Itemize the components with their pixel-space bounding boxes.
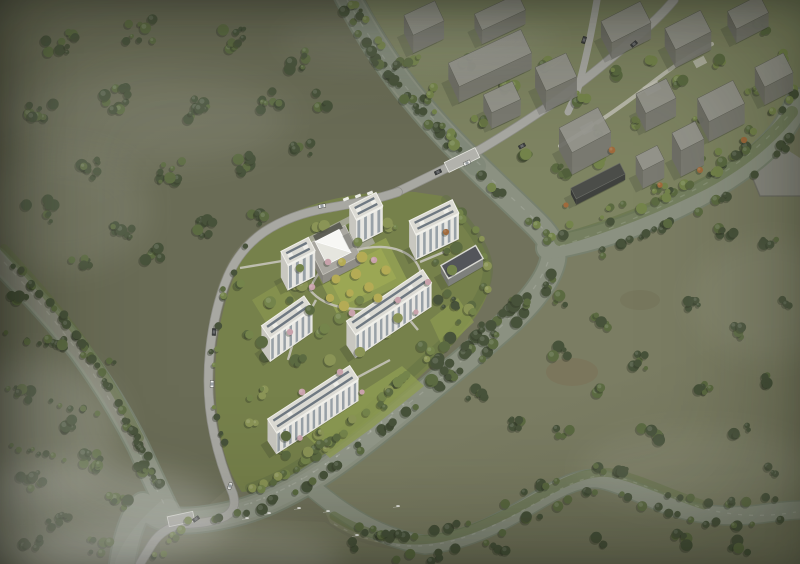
tree <box>270 479 277 486</box>
tree <box>451 242 463 254</box>
tree <box>562 347 567 352</box>
tree <box>112 360 116 364</box>
tree-highlight <box>258 505 263 510</box>
tree <box>245 330 254 339</box>
tree-highlight <box>732 523 735 526</box>
tree <box>779 106 786 113</box>
tree <box>443 289 451 297</box>
tree <box>292 489 298 495</box>
tree-highlight <box>234 30 237 33</box>
tree-highlight <box>295 467 298 470</box>
tree <box>546 268 557 279</box>
tree <box>348 537 357 546</box>
tree-highlight <box>306 306 310 310</box>
tree-highlight <box>424 357 427 360</box>
tree <box>242 27 246 31</box>
tree <box>763 382 769 388</box>
tree <box>642 229 651 238</box>
tree <box>426 377 434 385</box>
tree <box>234 39 242 47</box>
car <box>212 328 216 335</box>
tree <box>122 417 128 423</box>
tree <box>439 341 450 352</box>
tree-highlight <box>652 227 655 230</box>
tree <box>98 368 106 376</box>
tree-highlight <box>559 231 564 236</box>
tree <box>425 279 431 285</box>
tree <box>339 301 350 312</box>
tree <box>520 148 532 160</box>
window-strip <box>348 386 351 406</box>
tree <box>511 294 523 306</box>
tree <box>348 415 357 424</box>
tree <box>258 392 266 400</box>
tree <box>221 439 228 446</box>
tree <box>73 331 81 339</box>
tree-highlight <box>549 234 553 238</box>
tree-highlight <box>268 496 273 501</box>
tree <box>719 197 725 203</box>
tree <box>43 47 54 58</box>
tree-highlight <box>434 260 437 263</box>
tree-highlight <box>81 353 84 356</box>
tree <box>10 263 15 268</box>
tree-highlight <box>715 224 720 229</box>
tree <box>243 243 248 248</box>
tree <box>594 313 599 318</box>
tree <box>479 236 485 242</box>
tree <box>41 35 52 46</box>
tree <box>333 434 341 442</box>
window-strip <box>380 318 382 340</box>
tree <box>487 183 496 192</box>
tree-highlight <box>693 117 695 119</box>
tree <box>524 298 531 305</box>
tree <box>299 354 307 362</box>
tree <box>144 451 153 460</box>
tree <box>686 181 694 189</box>
tree <box>453 520 461 528</box>
tree <box>245 151 253 159</box>
tree <box>373 293 382 302</box>
tree <box>320 323 330 333</box>
tree <box>664 509 673 518</box>
tree-highlight <box>428 558 432 562</box>
tree <box>140 254 152 266</box>
tree <box>356 296 364 304</box>
tree-highlight <box>481 284 484 287</box>
tree <box>323 101 327 105</box>
window-strip <box>324 402 327 422</box>
tree-highlight <box>442 305 444 307</box>
window-strip <box>368 326 371 348</box>
tree-highlight <box>260 213 264 217</box>
tree <box>363 409 371 417</box>
tree-highlight <box>45 336 49 340</box>
tree <box>357 252 368 263</box>
window-strip <box>307 413 310 433</box>
tree <box>542 482 549 489</box>
tree <box>237 279 245 287</box>
tree-highlight <box>447 133 451 137</box>
tree-highlight <box>103 379 105 381</box>
tree-highlight <box>689 517 692 520</box>
tree <box>617 239 626 248</box>
tree <box>231 269 237 275</box>
tree-highlight <box>266 298 271 303</box>
tree <box>562 302 568 308</box>
tree <box>351 269 361 279</box>
tree <box>498 309 506 317</box>
car-windshield <box>213 330 216 333</box>
tree <box>57 339 68 350</box>
tree <box>641 351 649 359</box>
tree <box>60 310 68 318</box>
tree-highlight <box>444 230 447 233</box>
tree <box>461 342 469 350</box>
tree-highlight <box>674 530 678 534</box>
window-strip <box>310 254 313 278</box>
tree <box>296 264 304 272</box>
window-strip <box>330 398 332 418</box>
tree <box>332 275 341 284</box>
boat <box>297 507 301 509</box>
tree-highlight <box>745 423 748 426</box>
tree-highlight <box>119 407 123 411</box>
tree-highlight <box>287 58 292 63</box>
tree <box>577 94 586 103</box>
tree-highlight <box>658 183 660 185</box>
tree-highlight <box>484 541 487 544</box>
tree-highlight <box>299 389 302 392</box>
tree <box>600 541 607 548</box>
window-strip <box>374 322 377 344</box>
tree <box>287 329 293 335</box>
tree-highlight <box>703 522 706 525</box>
tree <box>466 521 471 526</box>
tree <box>499 529 507 537</box>
tree-highlight <box>444 524 449 529</box>
tree-highlight <box>458 216 462 220</box>
tree <box>773 150 780 157</box>
tree-highlight <box>427 92 430 95</box>
tree-highlight <box>440 123 443 126</box>
tree <box>243 510 250 517</box>
tree <box>361 529 368 536</box>
tree <box>157 169 163 175</box>
tree-highlight <box>743 147 747 151</box>
tree <box>395 297 401 303</box>
tree <box>750 128 757 135</box>
tree <box>303 447 314 458</box>
tree-highlight <box>371 526 374 529</box>
tree-highlight <box>778 517 781 520</box>
tree <box>205 230 213 238</box>
tree-highlight <box>600 247 603 250</box>
tree <box>500 499 510 509</box>
tree <box>610 68 615 73</box>
window-strip <box>377 209 380 233</box>
tree-highlight <box>221 293 224 296</box>
tree <box>325 259 332 266</box>
tree-highlight <box>432 358 438 364</box>
tree <box>644 366 648 370</box>
tree-highlight <box>549 352 554 357</box>
tree <box>490 542 496 548</box>
tree-highlight <box>396 531 399 534</box>
tree <box>58 38 65 45</box>
tree-highlight <box>427 347 431 351</box>
tree-highlight <box>394 225 396 227</box>
tree <box>600 215 604 219</box>
tree <box>192 224 203 235</box>
tree-highlight <box>130 34 132 36</box>
tree <box>71 33 80 42</box>
window-strip <box>354 383 356 403</box>
tree-highlight <box>480 356 483 359</box>
tree <box>133 439 139 445</box>
tree-highlight <box>621 202 624 205</box>
tree <box>662 193 672 203</box>
tree-highlight <box>723 192 726 195</box>
tree <box>324 354 336 366</box>
tree <box>645 55 655 65</box>
tree-highlight <box>770 108 773 111</box>
tree <box>585 488 591 494</box>
tree-highlight <box>534 222 538 226</box>
tree-highlight <box>544 237 548 241</box>
tree-highlight <box>275 473 279 477</box>
tree-highlight <box>382 405 385 408</box>
tree-highlight <box>695 208 699 212</box>
tree <box>432 109 437 114</box>
tree-highlight <box>786 134 791 139</box>
tree-highlight <box>340 7 345 12</box>
window-strip <box>289 265 292 289</box>
window-strip <box>342 390 345 410</box>
tree <box>212 405 216 409</box>
tree <box>256 336 268 348</box>
tree-highlight <box>339 259 343 263</box>
tree-highlight <box>241 36 244 39</box>
tree <box>751 170 759 178</box>
tree <box>389 418 397 426</box>
tree <box>444 248 450 254</box>
tree <box>714 54 725 65</box>
tree <box>308 152 312 156</box>
tree-highlight <box>627 236 630 239</box>
tree-highlight <box>171 166 173 168</box>
tree <box>429 525 440 536</box>
tree-highlight <box>555 291 560 296</box>
tree <box>122 37 130 45</box>
tree-highlight <box>544 230 547 233</box>
tree <box>606 217 614 225</box>
tree <box>436 554 443 561</box>
tree <box>480 393 488 401</box>
window-strip <box>427 286 430 308</box>
boat <box>396 505 400 507</box>
tree-highlight <box>502 547 506 551</box>
tree <box>469 308 476 315</box>
tree <box>35 290 43 298</box>
tree <box>681 533 687 539</box>
tree-highlight <box>66 51 68 53</box>
tree-highlight <box>307 140 311 144</box>
tree-highlight <box>414 104 417 107</box>
tree <box>715 148 722 155</box>
tree <box>359 389 364 394</box>
tree-highlight <box>317 441 321 445</box>
boat <box>355 534 359 536</box>
tree <box>411 533 418 540</box>
tree <box>399 94 409 104</box>
haze-north <box>280 10 560 70</box>
window-strip <box>403 302 406 324</box>
window-strip <box>371 213 374 237</box>
window-strip <box>302 316 305 338</box>
tree-highlight <box>601 253 604 256</box>
tree-highlight <box>310 285 313 288</box>
boat <box>326 510 330 512</box>
tree <box>564 495 572 503</box>
tree <box>125 20 133 28</box>
car <box>210 380 214 387</box>
tree <box>94 362 100 368</box>
tree-highlight <box>609 147 612 150</box>
tree <box>702 390 707 395</box>
tree-highlight <box>526 219 529 222</box>
tree-highlight <box>787 97 791 101</box>
tree-highlight <box>484 263 488 267</box>
tree-highlight <box>430 84 434 88</box>
tree <box>555 432 562 439</box>
window-strip <box>417 234 420 258</box>
tree <box>711 170 717 176</box>
tree-highlight <box>698 168 701 171</box>
tree-highlight <box>480 328 483 331</box>
tree <box>606 206 611 211</box>
tree <box>413 404 419 410</box>
tree <box>217 24 228 35</box>
tree <box>563 202 568 207</box>
tree-highlight <box>544 282 547 285</box>
tree-highlight <box>292 146 295 149</box>
tree-highlight <box>212 363 214 365</box>
tree <box>65 29 72 36</box>
tree-highlight <box>140 448 143 451</box>
tree <box>719 227 725 233</box>
tree <box>219 431 223 435</box>
tree <box>663 219 672 228</box>
window-strip <box>301 417 304 437</box>
tree <box>445 359 454 368</box>
tree <box>433 295 443 305</box>
tree <box>355 522 364 531</box>
window-strip <box>423 231 426 255</box>
tree <box>268 87 276 95</box>
tree <box>349 310 356 317</box>
tree-highlight <box>647 426 652 431</box>
tree-highlight <box>355 239 359 243</box>
tree <box>636 203 647 214</box>
tree-highlight <box>605 324 609 328</box>
tree <box>309 477 317 485</box>
tree <box>158 180 162 184</box>
tree <box>382 218 392 228</box>
window-strip <box>386 314 389 336</box>
tree-highlight <box>246 419 250 423</box>
tree <box>247 395 254 402</box>
tree-highlight <box>466 396 468 398</box>
tree <box>456 319 461 324</box>
tree <box>729 228 739 238</box>
tree <box>405 549 415 559</box>
tree-highlight <box>298 436 301 439</box>
tree-highlight <box>281 471 284 474</box>
tree-highlight <box>324 439 327 442</box>
tree-highlight <box>291 143 294 146</box>
tree <box>741 137 747 143</box>
tree <box>18 267 24 273</box>
tree <box>136 37 142 43</box>
tree <box>208 218 217 227</box>
tree <box>537 514 543 520</box>
tree-highlight <box>418 342 423 347</box>
tree <box>447 265 457 275</box>
tree-highlight <box>681 181 686 186</box>
tree <box>214 346 220 352</box>
tree <box>234 509 242 517</box>
tree-highlight <box>522 489 525 492</box>
tree-highlight <box>708 386 711 389</box>
tree-highlight <box>209 350 211 352</box>
tree <box>674 511 680 517</box>
tree <box>393 556 401 564</box>
tree <box>7 291 17 301</box>
tree <box>346 289 353 296</box>
tree <box>591 532 602 543</box>
tree <box>340 430 348 438</box>
tree <box>456 368 463 375</box>
tree-highlight <box>249 485 253 489</box>
tree <box>712 517 721 526</box>
tree <box>78 339 87 348</box>
tree-highlight <box>358 448 362 452</box>
tree <box>284 63 296 75</box>
window-strip <box>277 432 280 452</box>
window-strip <box>296 320 299 342</box>
tree-highlight <box>746 126 749 129</box>
tree <box>46 298 55 307</box>
tree-highlight <box>750 522 752 524</box>
tree <box>516 425 522 431</box>
tree <box>486 320 497 331</box>
tree-highlight <box>372 258 375 261</box>
window-strip <box>421 290 424 312</box>
car-windshield <box>211 382 214 385</box>
tree <box>566 221 574 229</box>
tree <box>4 330 9 335</box>
tree-highlight <box>349 2 353 6</box>
tree <box>384 71 391 78</box>
tree <box>744 549 751 556</box>
window-strip <box>429 228 432 252</box>
window-strip <box>277 333 280 355</box>
tree <box>103 381 109 387</box>
tree <box>337 369 344 376</box>
tree-highlight <box>732 151 736 155</box>
